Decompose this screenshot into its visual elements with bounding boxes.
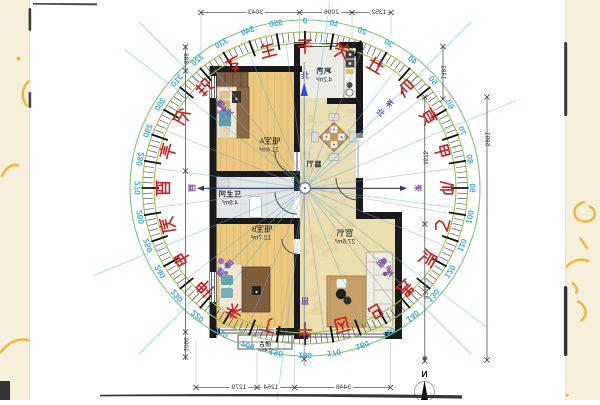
svg-text:3043: 3043 [248, 9, 263, 16]
svg-text:1264: 1264 [263, 384, 278, 391]
svg-text:N: N [421, 369, 427, 379]
svg-text:90: 90 [468, 183, 478, 193]
svg-text:2096: 2096 [324, 9, 339, 16]
svg-text:0: 0 [302, 16, 307, 26]
svg-text:3448: 3448 [336, 384, 351, 391]
svg-text:1279: 1279 [231, 384, 246, 391]
svg-text:270: 270 [133, 181, 143, 195]
svg-text:1352: 1352 [371, 9, 386, 16]
svg-text:1096: 1096 [182, 337, 189, 352]
svg-text:5891: 5891 [484, 131, 491, 146]
svg-text:A: A [259, 137, 264, 146]
svg-text:4675: 4675 [421, 150, 428, 165]
svg-text:4.2m²: 4.2m² [316, 77, 332, 84]
svg-text:4360: 4360 [421, 284, 428, 299]
svg-text:1383: 1383 [440, 65, 447, 80]
svg-text:4.9m²: 4.9m² [222, 200, 238, 207]
svg-text:12.7m²: 12.7m² [250, 235, 271, 242]
svg-text:180: 180 [298, 351, 312, 361]
svg-text:888: 888 [182, 53, 189, 64]
